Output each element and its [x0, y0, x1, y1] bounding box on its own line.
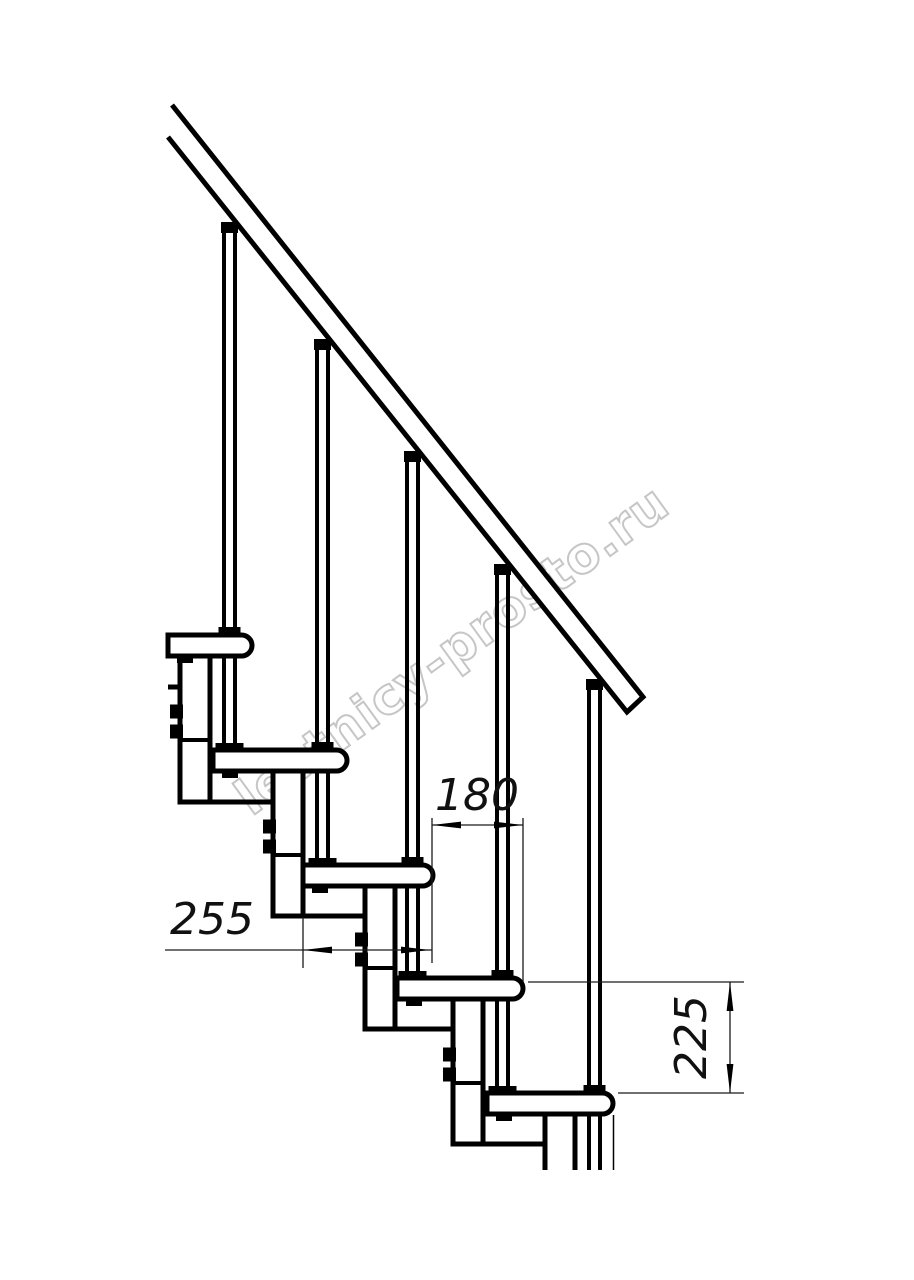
strut-5 [589, 1114, 600, 1170]
arrowhead-up-icon [727, 982, 734, 1011]
staircase-technical-drawing: lestnicy-prosto.ru [0, 0, 914, 1280]
baluster-5 [584, 679, 606, 1093]
strut-2 [317, 771, 328, 865]
strut-3 [407, 886, 418, 978]
dimension-step-rise: 225 [528, 982, 744, 1093]
tread-1 [168, 635, 252, 656]
dimension-label-step-rise: 225 [666, 995, 717, 1079]
arrowhead-right-icon [401, 947, 430, 954]
arrowhead-left-icon [303, 947, 332, 954]
tread-4 [397, 978, 523, 999]
baluster-2 [312, 339, 334, 750]
arrowhead-down-icon [727, 1064, 734, 1093]
dimension-label-tread-depth: 255 [170, 894, 254, 945]
drawing-canvas: lestnicy-prosto.ru [0, 0, 914, 1280]
module-5 [545, 1114, 575, 1170]
strut-4 [497, 999, 508, 1093]
strut-1 [224, 656, 235, 750]
tread-3 [303, 865, 433, 886]
arrowhead-left-icon [432, 822, 461, 829]
tread-2 [213, 750, 347, 771]
baluster-1 [219, 222, 241, 635]
dimension-label-step-run: 180 [435, 770, 519, 821]
tread-5 [487, 1093, 613, 1114]
